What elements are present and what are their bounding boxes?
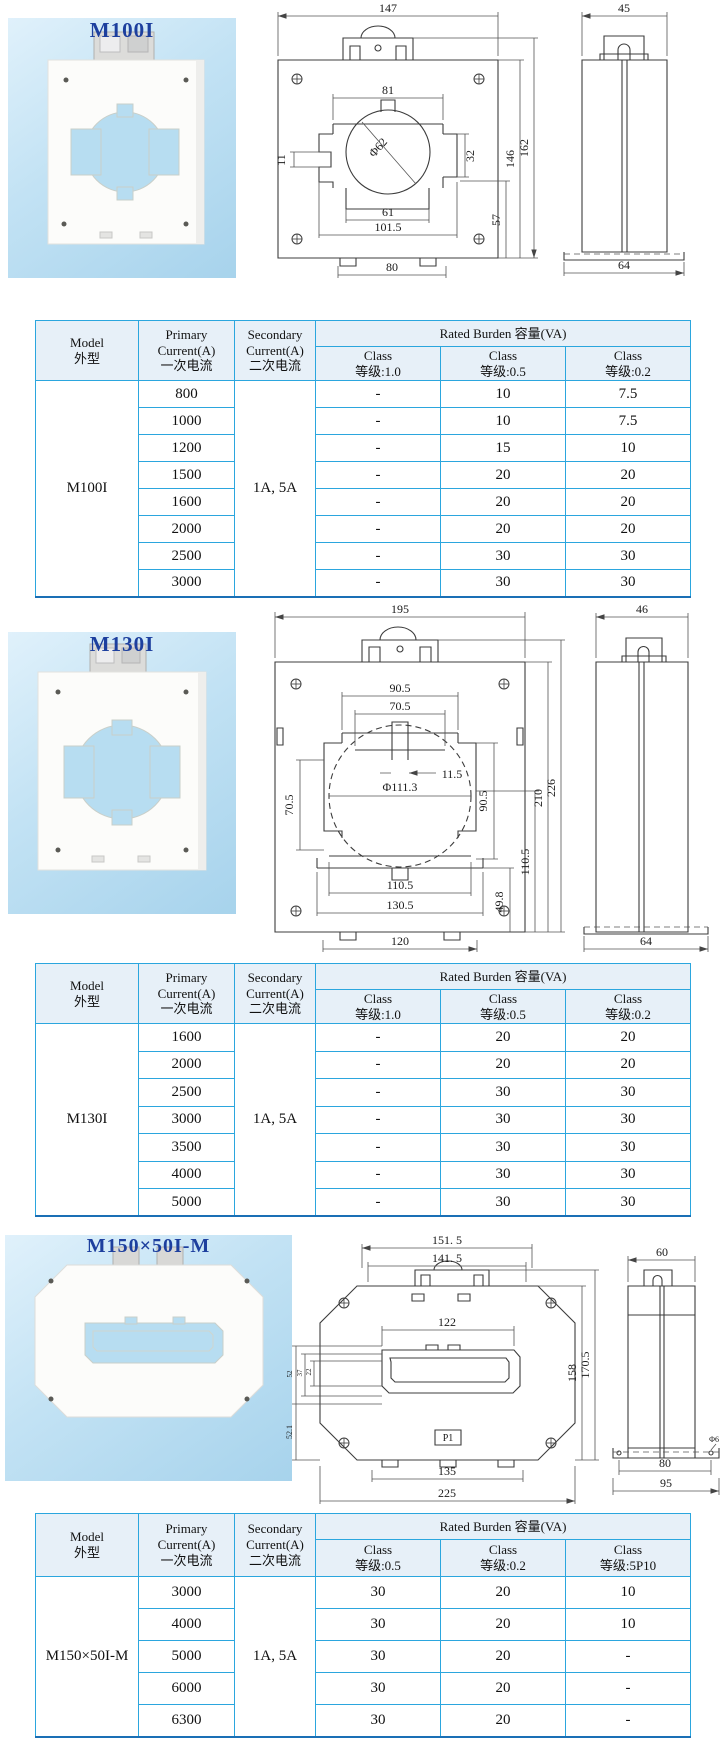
burden-cell: 30 <box>316 1609 441 1641</box>
product-label-m150: M150×50I-M <box>5 1235 292 1258</box>
dim-label: 80 <box>659 1456 671 1470</box>
burden-cell: 30 <box>316 1673 441 1705</box>
burden-cell: - <box>566 1705 691 1737</box>
burden-cell: 20 <box>441 462 566 489</box>
header-class-2: Class 等级:0.5 <box>441 347 566 381</box>
dim-label: 141. 5 <box>432 1251 462 1265</box>
primary-current-cell: 2000 <box>139 516 235 543</box>
dim-label: 170.5 <box>578 1352 592 1379</box>
burden-cell: 7.5 <box>566 381 691 408</box>
burden-cell: 30 <box>441 1106 566 1134</box>
dim-label: 61 <box>382 205 394 219</box>
dim-label: 11 <box>274 154 288 166</box>
dim-label: 70.5 <box>282 795 296 816</box>
header-class-1: Class 等级:0.5 <box>316 1540 441 1577</box>
burden-cell: - <box>566 1673 691 1705</box>
burden-cell: 20 <box>566 1024 691 1052</box>
table-body: M100I8001A, 5A-107.51000-107.51200-15101… <box>36 381 691 597</box>
product-photo-panel-m150: M150×50I-M <box>5 1235 292 1481</box>
dim-label: 158 <box>565 1364 579 1382</box>
dim-label: Φ6 <box>709 1435 719 1444</box>
burden-cell: 30 <box>566 570 691 597</box>
secondary-current-cell: 1A, 5A <box>235 1577 316 1737</box>
dim-label: 151. 5 <box>432 1233 462 1247</box>
burden-cell: - <box>316 1024 441 1052</box>
burden-cell: 15 <box>441 435 566 462</box>
spec-row: M100I8001A, 5A-107.5 <box>36 381 691 408</box>
primary-current-cell: 4000 <box>139 1161 235 1189</box>
model-cell: M130I <box>36 1024 139 1217</box>
burden-cell: 20 <box>441 489 566 516</box>
dim-label: 135 <box>438 1464 456 1478</box>
dim-label: Φ62 <box>366 135 390 160</box>
burden-cell: 10 <box>566 1609 691 1641</box>
product-label-m130i: M130I <box>8 632 236 657</box>
product-photo-panel-m100i: M100I <box>8 18 236 278</box>
burden-cell: 30 <box>441 1189 566 1217</box>
dim-label: 110.5 <box>387 878 414 892</box>
burden-cell: - <box>316 1161 441 1189</box>
burden-cell: - <box>316 516 441 543</box>
burden-cell: 30 <box>566 1106 691 1134</box>
header-class-1: Class 等级:1.0 <box>316 347 441 381</box>
header-rated-burden: Rated Burden 容量(VA) <box>316 964 691 990</box>
primary-current-cell: 1600 <box>139 489 235 516</box>
table-header: Model 外型 Primary Current(A) 一次电流 Seconda… <box>36 964 691 1024</box>
terminal-label: P1 <box>443 1433 454 1444</box>
burden-cell: - <box>566 1641 691 1673</box>
dim-label: 37 <box>296 1369 304 1377</box>
burden-cell: 20 <box>441 1705 566 1737</box>
burden-cell: 30 <box>566 1134 691 1162</box>
spec-row: M130I16001A, 5A-2020 <box>36 1024 691 1052</box>
side-view-drawing-m130i: 46 64 <box>582 600 715 960</box>
side-view-drawing-m100i: 45 64 <box>552 2 715 284</box>
burden-cell: 20 <box>566 516 691 543</box>
primary-current-cell: 3000 <box>139 1577 235 1609</box>
datasheet-page: { "colors": { "table_border": "#2ba6de",… <box>0 0 720 1754</box>
burden-cell: 30 <box>566 1079 691 1107</box>
burden-cell: 30 <box>316 1577 441 1609</box>
header-rated-burden: Rated Burden 容量(VA) <box>316 1514 691 1540</box>
burden-cell: 10 <box>566 1577 691 1609</box>
burden-cell: 7.5 <box>566 408 691 435</box>
secondary-current-cell: 1A, 5A <box>235 381 316 597</box>
header-primary-current: Primary Current(A) 一次电流 <box>139 321 235 381</box>
dim-label: 146 <box>503 150 517 168</box>
dim-label: 95 <box>660 1476 672 1490</box>
burden-cell: 30 <box>316 1705 441 1737</box>
header-secondary-current: Secondary Current(A) 二次电流 <box>235 964 316 1024</box>
dim-label: 210 <box>531 789 545 807</box>
model-cell: M150×50I-M <box>36 1577 139 1737</box>
burden-cell: - <box>316 1106 441 1134</box>
burden-cell: 20 <box>441 1641 566 1673</box>
burden-cell: 30 <box>441 1079 566 1107</box>
header-primary-current: Primary Current(A) 一次电流 <box>139 1514 235 1577</box>
header-secondary-current: Secondary Current(A) 二次电流 <box>235 1514 316 1577</box>
burden-cell: 20 <box>441 1051 566 1079</box>
header-class-3: Class 等级:0.2 <box>566 990 691 1024</box>
dim-label: 110.5 <box>518 849 532 876</box>
burden-cell: - <box>316 543 441 570</box>
dim-label: 81 <box>382 83 394 97</box>
dim-label: 162 <box>517 139 531 157</box>
primary-current-cell: 1600 <box>139 1024 235 1052</box>
side-view-drawing-m150: 60 Φ6 80 95 <box>612 1238 720 1510</box>
burden-cell: 10 <box>441 381 566 408</box>
dim-label: 46 <box>636 602 648 616</box>
product-photo-m130i <box>8 632 236 884</box>
dim-label: 22 <box>305 1368 313 1376</box>
dim-label: 64 <box>640 934 652 948</box>
header-class-2: Class 等级:0.2 <box>441 1540 566 1577</box>
center-hole <box>85 1317 223 1363</box>
burden-cell: - <box>316 381 441 408</box>
dim-label: 64 <box>618 258 630 272</box>
burden-cell: 20 <box>441 516 566 543</box>
header-class-2: Class 等级:0.5 <box>441 990 566 1024</box>
burden-cell: - <box>316 408 441 435</box>
burden-cell: 10 <box>566 435 691 462</box>
burden-cell: 20 <box>566 489 691 516</box>
burden-cell: 30 <box>566 1161 691 1189</box>
primary-current-cell: 5000 <box>139 1641 235 1673</box>
header-class-1: Class 等级:1.0 <box>316 990 441 1024</box>
front-view-drawing-m130i: 195 90.5 70.5 11.5 Φ111.3 70.5 90.5 49.8… <box>240 600 580 960</box>
primary-current-cell: 3500 <box>139 1134 235 1162</box>
dim-label: 130.5 <box>387 898 414 912</box>
table-header: Model 外型 Primary Current(A) 一次电流 Seconda… <box>36 321 691 381</box>
burden-cell: 20 <box>441 1024 566 1052</box>
burden-cell: 10 <box>441 408 566 435</box>
product-photo-m100i <box>8 18 236 250</box>
burden-cell: 30 <box>441 543 566 570</box>
front-view-drawing-m150: 151. 5 141. 5 122 52 37 22 52.1 P1 158 1… <box>282 1238 612 1510</box>
burden-cell: 30 <box>441 1161 566 1189</box>
burden-cell: 20 <box>566 462 691 489</box>
dim-label: 195 <box>391 602 409 616</box>
dim-label: 122 <box>438 1315 456 1329</box>
primary-current-cell: 1500 <box>139 462 235 489</box>
burden-cell: 20 <box>441 1577 566 1609</box>
primary-current-cell: 1200 <box>139 435 235 462</box>
header-class-3: Class 等级:0.2 <box>566 347 691 381</box>
dim-label: 11.5 <box>442 767 463 781</box>
burden-cell: - <box>316 435 441 462</box>
header-model: Model 外型 <box>36 964 139 1024</box>
primary-current-cell: 4000 <box>139 1609 235 1641</box>
dim-label: 60 <box>656 1245 668 1259</box>
dim-label: 101.5 <box>375 220 402 234</box>
header-model: Model 外型 <box>36 1514 139 1577</box>
primary-current-cell: 2500 <box>139 1079 235 1107</box>
spec-table-m150: Model 外型 Primary Current(A) 一次电流 Seconda… <box>35 1513 691 1738</box>
dim-label: 57 <box>489 214 503 226</box>
primary-current-cell: 5000 <box>139 1189 235 1217</box>
dim-label: 70.5 <box>390 699 411 713</box>
primary-current-cell: 3000 <box>139 1106 235 1134</box>
burden-cell: 20 <box>441 1609 566 1641</box>
burden-cell: 20 <box>441 1673 566 1705</box>
secondary-current-cell: 1A, 5A <box>235 1024 316 1217</box>
primary-current-cell: 800 <box>139 381 235 408</box>
primary-current-cell: 6300 <box>139 1705 235 1737</box>
primary-current-cell: 2000 <box>139 1051 235 1079</box>
header-secondary-current: Secondary Current(A) 二次电流 <box>235 321 316 381</box>
burden-cell: 30 <box>316 1641 441 1673</box>
dim-label: 90.5 <box>390 681 411 695</box>
burden-cell: 20 <box>566 1051 691 1079</box>
burden-cell: - <box>316 462 441 489</box>
dim-label: 52 <box>286 1370 294 1378</box>
burden-cell: - <box>316 1051 441 1079</box>
header-primary-current: Primary Current(A) 一次电流 <box>139 964 235 1024</box>
dim-label: 49.8 <box>492 892 506 913</box>
primary-current-cell: 6000 <box>139 1673 235 1705</box>
burden-cell: 30 <box>566 543 691 570</box>
header-class-3: Class 等级:5P10 <box>566 1540 691 1577</box>
burden-cell: - <box>316 1134 441 1162</box>
front-view-drawing-m100i: 147 81 Φ62 11 32 61 101.5 80 57 146 162 <box>240 2 550 284</box>
dim-label: 52.1 <box>285 1425 294 1439</box>
burden-cell: - <box>316 1079 441 1107</box>
table-header: Model 外型 Primary Current(A) 一次电流 Seconda… <box>36 1514 691 1577</box>
spec-row: M150×50I-M30001A, 5A302010 <box>36 1577 691 1609</box>
burden-cell: - <box>316 489 441 516</box>
table-body: M150×50I-M30001A, 5A30201040003020105000… <box>36 1577 691 1737</box>
burden-cell: - <box>316 1189 441 1217</box>
model-cell: M100I <box>36 381 139 597</box>
header-rated-burden: Rated Burden 容量(VA) <box>316 321 691 347</box>
dim-label: 226 <box>544 779 558 797</box>
dim-label: Φ111.3 <box>383 780 418 794</box>
dim-label: 90.5 <box>476 791 490 812</box>
dim-label: 32 <box>463 150 477 162</box>
primary-current-cell: 1000 <box>139 408 235 435</box>
dim-label: 120 <box>391 934 409 948</box>
dim-label: 45 <box>618 1 630 15</box>
primary-current-cell: 2500 <box>139 543 235 570</box>
table-body: M130I16001A, 5A-20202000-20202500-303030… <box>36 1024 691 1217</box>
spec-table-m130i: Model 外型 Primary Current(A) 一次电流 Seconda… <box>35 963 691 1217</box>
product-label-m100i: M100I <box>8 18 236 43</box>
burden-cell: 30 <box>566 1189 691 1217</box>
primary-current-cell: 3000 <box>139 570 235 597</box>
dim-label: 80 <box>386 260 398 274</box>
dim-label: 225 <box>438 1486 456 1500</box>
spec-table-m100i: Model 外型 Primary Current(A) 一次电流 Seconda… <box>35 320 691 598</box>
product-photo-panel-m130i: M130I <box>8 632 236 914</box>
product-photo-m150 <box>5 1235 292 1441</box>
dim-label: 147 <box>379 1 397 15</box>
burden-cell: - <box>316 570 441 597</box>
burden-cell: 30 <box>441 570 566 597</box>
burden-cell: 30 <box>441 1134 566 1162</box>
header-model: Model 外型 <box>36 321 139 381</box>
